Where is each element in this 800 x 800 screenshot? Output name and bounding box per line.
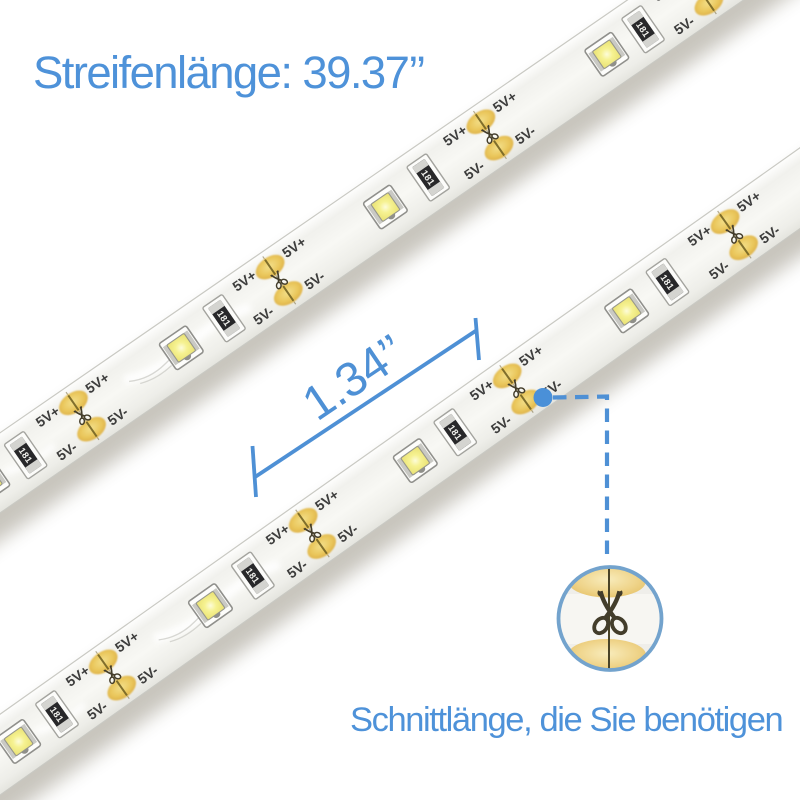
svg-text:Streifenlänge: 39.37’’: Streifenlänge: 39.37’’ xyxy=(33,47,424,98)
svg-text:Schnittlänge, die Sie benötige: Schnittlänge, die Sie benötigen xyxy=(350,701,782,739)
